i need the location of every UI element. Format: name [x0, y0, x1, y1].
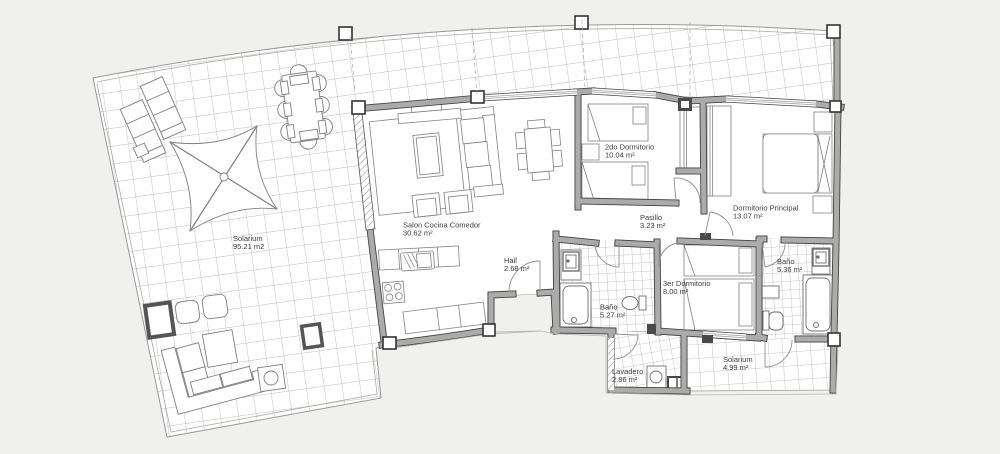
svg-text:5.36 m²: 5.36 m²: [777, 265, 803, 274]
svg-text:10.04 m²: 10.04 m²: [605, 151, 635, 160]
svg-text:2.68 m²: 2.68 m²: [504, 264, 530, 273]
svg-text:8.00 m²: 8.00 m²: [663, 287, 689, 296]
svg-text:3.23 m²: 3.23 m²: [640, 221, 666, 230]
svg-text:4.99 m²: 4.99 m²: [723, 363, 749, 372]
svg-text:13.07 m²: 13.07 m²: [733, 212, 763, 221]
svg-text:2.86 m²: 2.86 m²: [612, 375, 638, 384]
svg-text:95.21 m2: 95.21 m2: [233, 242, 264, 251]
svg-text:5.27 m²: 5.27 m²: [600, 311, 626, 320]
svg-text:30.62 m²: 30.62 m²: [403, 229, 433, 238]
